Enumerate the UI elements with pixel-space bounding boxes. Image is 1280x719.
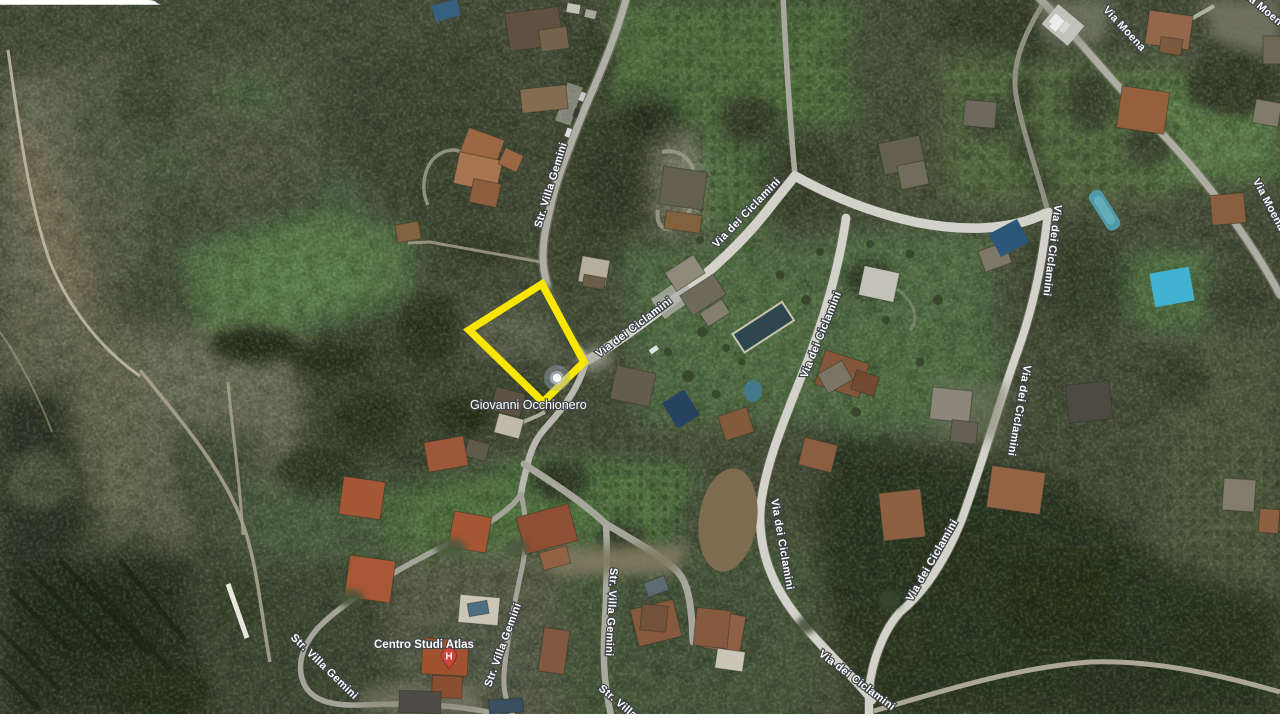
svg-text:H: H — [445, 652, 452, 663]
svg-text:Centro Studi Atlas: Centro Studi Atlas — [374, 639, 474, 651]
svg-text:Giovanni Occhionero: Giovanni Occhionero — [470, 398, 587, 412]
